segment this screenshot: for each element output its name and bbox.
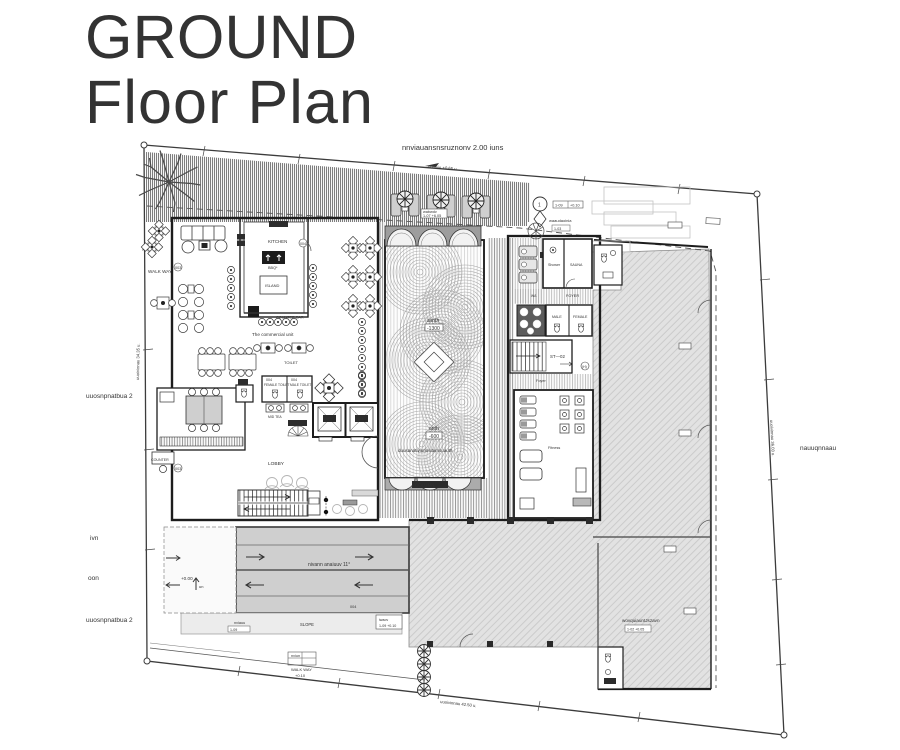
- svg-text:Fitness: Fitness: [548, 446, 560, 450]
- svg-text:WALK WAY: WALK WAY: [148, 269, 172, 274]
- svg-text:iwaov: iwaov: [379, 618, 388, 622]
- svg-text:uuoivinnau 42.50 u.: uuoivinnau 42.50 u.: [440, 699, 477, 708]
- svg-text:WALK WAY: WALK WAY: [291, 667, 312, 672]
- svg-text:nviauu: nviauu: [234, 621, 245, 625]
- svg-text:COLUMN: COLUMN: [415, 483, 435, 488]
- svg-text:FEMALE TOILET: FEMALE TOILET: [264, 383, 290, 387]
- svg-text:duusanativiurinsitamsuauth: duusanativiurinsitamsuauth: [398, 448, 453, 453]
- svg-text:004: 004: [291, 378, 297, 382]
- svg-text:003: 003: [175, 266, 181, 270]
- svg-text:1-07 +6.05: 1-07 +6.05: [423, 214, 441, 218]
- svg-text:MID TEA: MID TEA: [268, 415, 282, 419]
- svg-text:LOBBY: LOBBY: [268, 461, 285, 467]
- svg-text:uuoivinnau 34.35 u.: uuoivinnau 34.35 u.: [135, 343, 141, 380]
- svg-text:nviun: nviun: [291, 654, 300, 658]
- svg-text:anth: anth: [429, 426, 439, 432]
- svg-text:oon: oon: [88, 575, 99, 582]
- svg-text:MALE TOILET: MALE TOILET: [290, 383, 311, 387]
- svg-text:ivn: ivn: [90, 535, 99, 542]
- svg-text:003: 003: [175, 467, 181, 471]
- svg-text:uuosnpnatbua 2: uuosnpnatbua 2: [86, 393, 133, 400]
- svg-text:un: un: [199, 584, 203, 589]
- svg-text:+0.00: +0.00: [181, 576, 193, 581]
- svg-text:1-09: 1-09: [555, 204, 563, 208]
- svg-text:Lift1: Lift1: [356, 417, 364, 422]
- svg-text:FEMALE: FEMALE: [573, 315, 588, 319]
- svg-text:nauuqnnaau: nauuqnnaau: [800, 445, 837, 452]
- svg-text:nnviauansnsruznonv 2.00 iuns: nnviauansnsruznonv 2.00 iuns: [402, 143, 504, 152]
- svg-text:KITCHEN: KITCHEN: [268, 239, 287, 244]
- svg-text:wovquiauntJszavn: wovquiauntJszavn: [622, 618, 660, 623]
- svg-text:uuosnpnatbua 2: uuosnpnatbua 2: [86, 617, 133, 624]
- svg-text:004: 004: [266, 378, 272, 382]
- svg-text:WA: WA: [531, 294, 537, 298]
- svg-text:(H): (H): [582, 365, 587, 369]
- svg-text:+0.10: +0.10: [570, 204, 580, 208]
- svg-text:BBQ*: BBQ*: [268, 266, 278, 270]
- svg-text:FOYER: FOYER: [566, 294, 579, 298]
- svg-text:1-02 +0.05: 1-02 +0.05: [627, 628, 644, 632]
- svg-text:ST—02: ST—02: [550, 354, 565, 359]
- svg-text:waaudaoinia: waaudaoinia: [549, 218, 572, 223]
- svg-text:004: 004: [350, 605, 356, 609]
- svg-text:-600: -600: [429, 434, 439, 440]
- svg-text:MALE: MALE: [552, 315, 562, 319]
- svg-text:COUNTER: COUNTER: [151, 458, 169, 462]
- svg-text:nivann anaiuuv 11°: nivann anaiuuv 11°: [308, 562, 350, 568]
- svg-text:1-09: 1-09: [230, 628, 237, 632]
- svg-text:Foyer: Foyer: [536, 379, 546, 383]
- svg-text:Shower: Shower: [548, 263, 561, 267]
- svg-text:1: 1: [538, 203, 541, 209]
- svg-text:TOILET: TOILET: [284, 360, 298, 365]
- svg-text:The commercial unit: The commercial unit: [252, 332, 294, 337]
- svg-text:004: 004: [300, 242, 306, 246]
- svg-text:SAUNA: SAUNA: [570, 263, 583, 267]
- svg-text:avnth: avnth: [427, 318, 439, 324]
- svg-text:+0.10: +0.10: [295, 673, 306, 678]
- svg-text:-1300: -1300: [427, 326, 440, 332]
- svg-text:SLOPE: SLOPE: [300, 622, 314, 627]
- svg-text:ISLAND: ISLAND: [265, 283, 280, 288]
- svg-text:Floor Plan: Floor Plan: [85, 68, 374, 136]
- svg-text:GROUND: GROUND: [85, 3, 357, 71]
- svg-text:Lift2: Lift2: [324, 417, 332, 422]
- svg-text:1-03: 1-03: [554, 227, 561, 231]
- svg-text:1-09 +0.10: 1-09 +0.10: [379, 624, 396, 628]
